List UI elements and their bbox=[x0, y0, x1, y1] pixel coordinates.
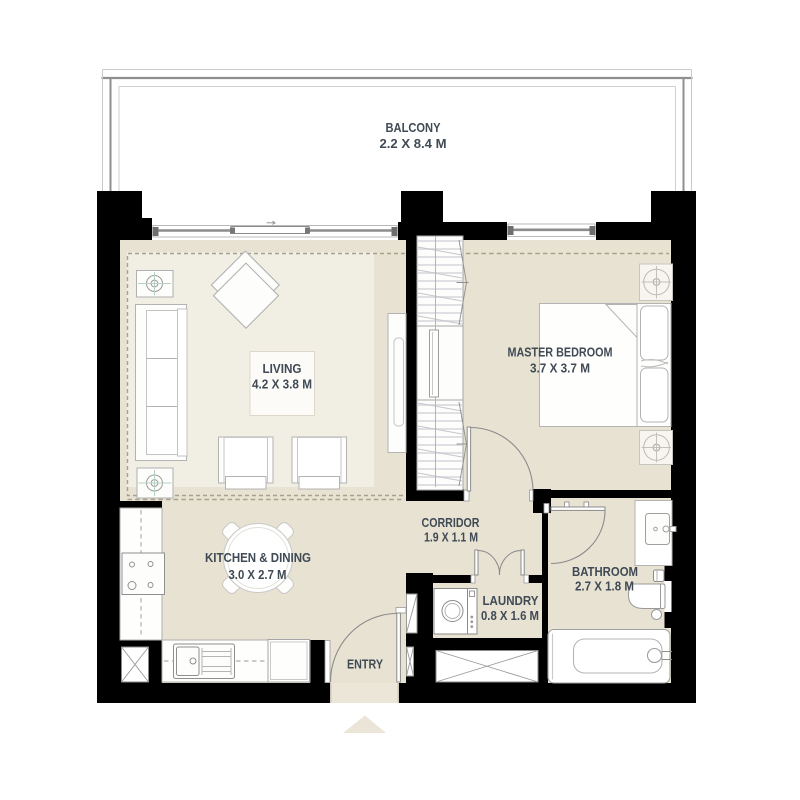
svg-text:0.8 X 1.6 M: 0.8 X 1.6 M bbox=[481, 609, 539, 623]
svg-text:1.9 X 1.1 M: 1.9 X 1.1 M bbox=[424, 531, 478, 545]
svg-text:3.0 X 2.7 M: 3.0 X 2.7 M bbox=[229, 568, 287, 582]
svg-text:LAUNDRY: LAUNDRY bbox=[483, 594, 540, 608]
svg-text:LIVING: LIVING bbox=[263, 362, 302, 376]
svg-text:3.7 X 3.7 M: 3.7 X 3.7 M bbox=[530, 362, 590, 376]
svg-text:2.7 X 1.8 M: 2.7 X 1.8 M bbox=[575, 580, 634, 594]
svg-text:MASTER BEDROOM: MASTER BEDROOM bbox=[508, 346, 613, 360]
svg-text:2.2 X 8.4 M: 2.2 X 8.4 M bbox=[380, 137, 447, 151]
svg-text:4.2 X 3.8 M: 4.2 X 3.8 M bbox=[252, 378, 312, 392]
svg-text:BALCONY: BALCONY bbox=[386, 121, 442, 135]
svg-text:ENTRY: ENTRY bbox=[347, 658, 384, 672]
svg-text:CORRIDOR: CORRIDOR bbox=[422, 516, 480, 530]
svg-text:BATHROOM: BATHROOM bbox=[572, 565, 638, 579]
svg-text:KITCHEN & DINING: KITCHEN & DINING bbox=[205, 551, 311, 565]
